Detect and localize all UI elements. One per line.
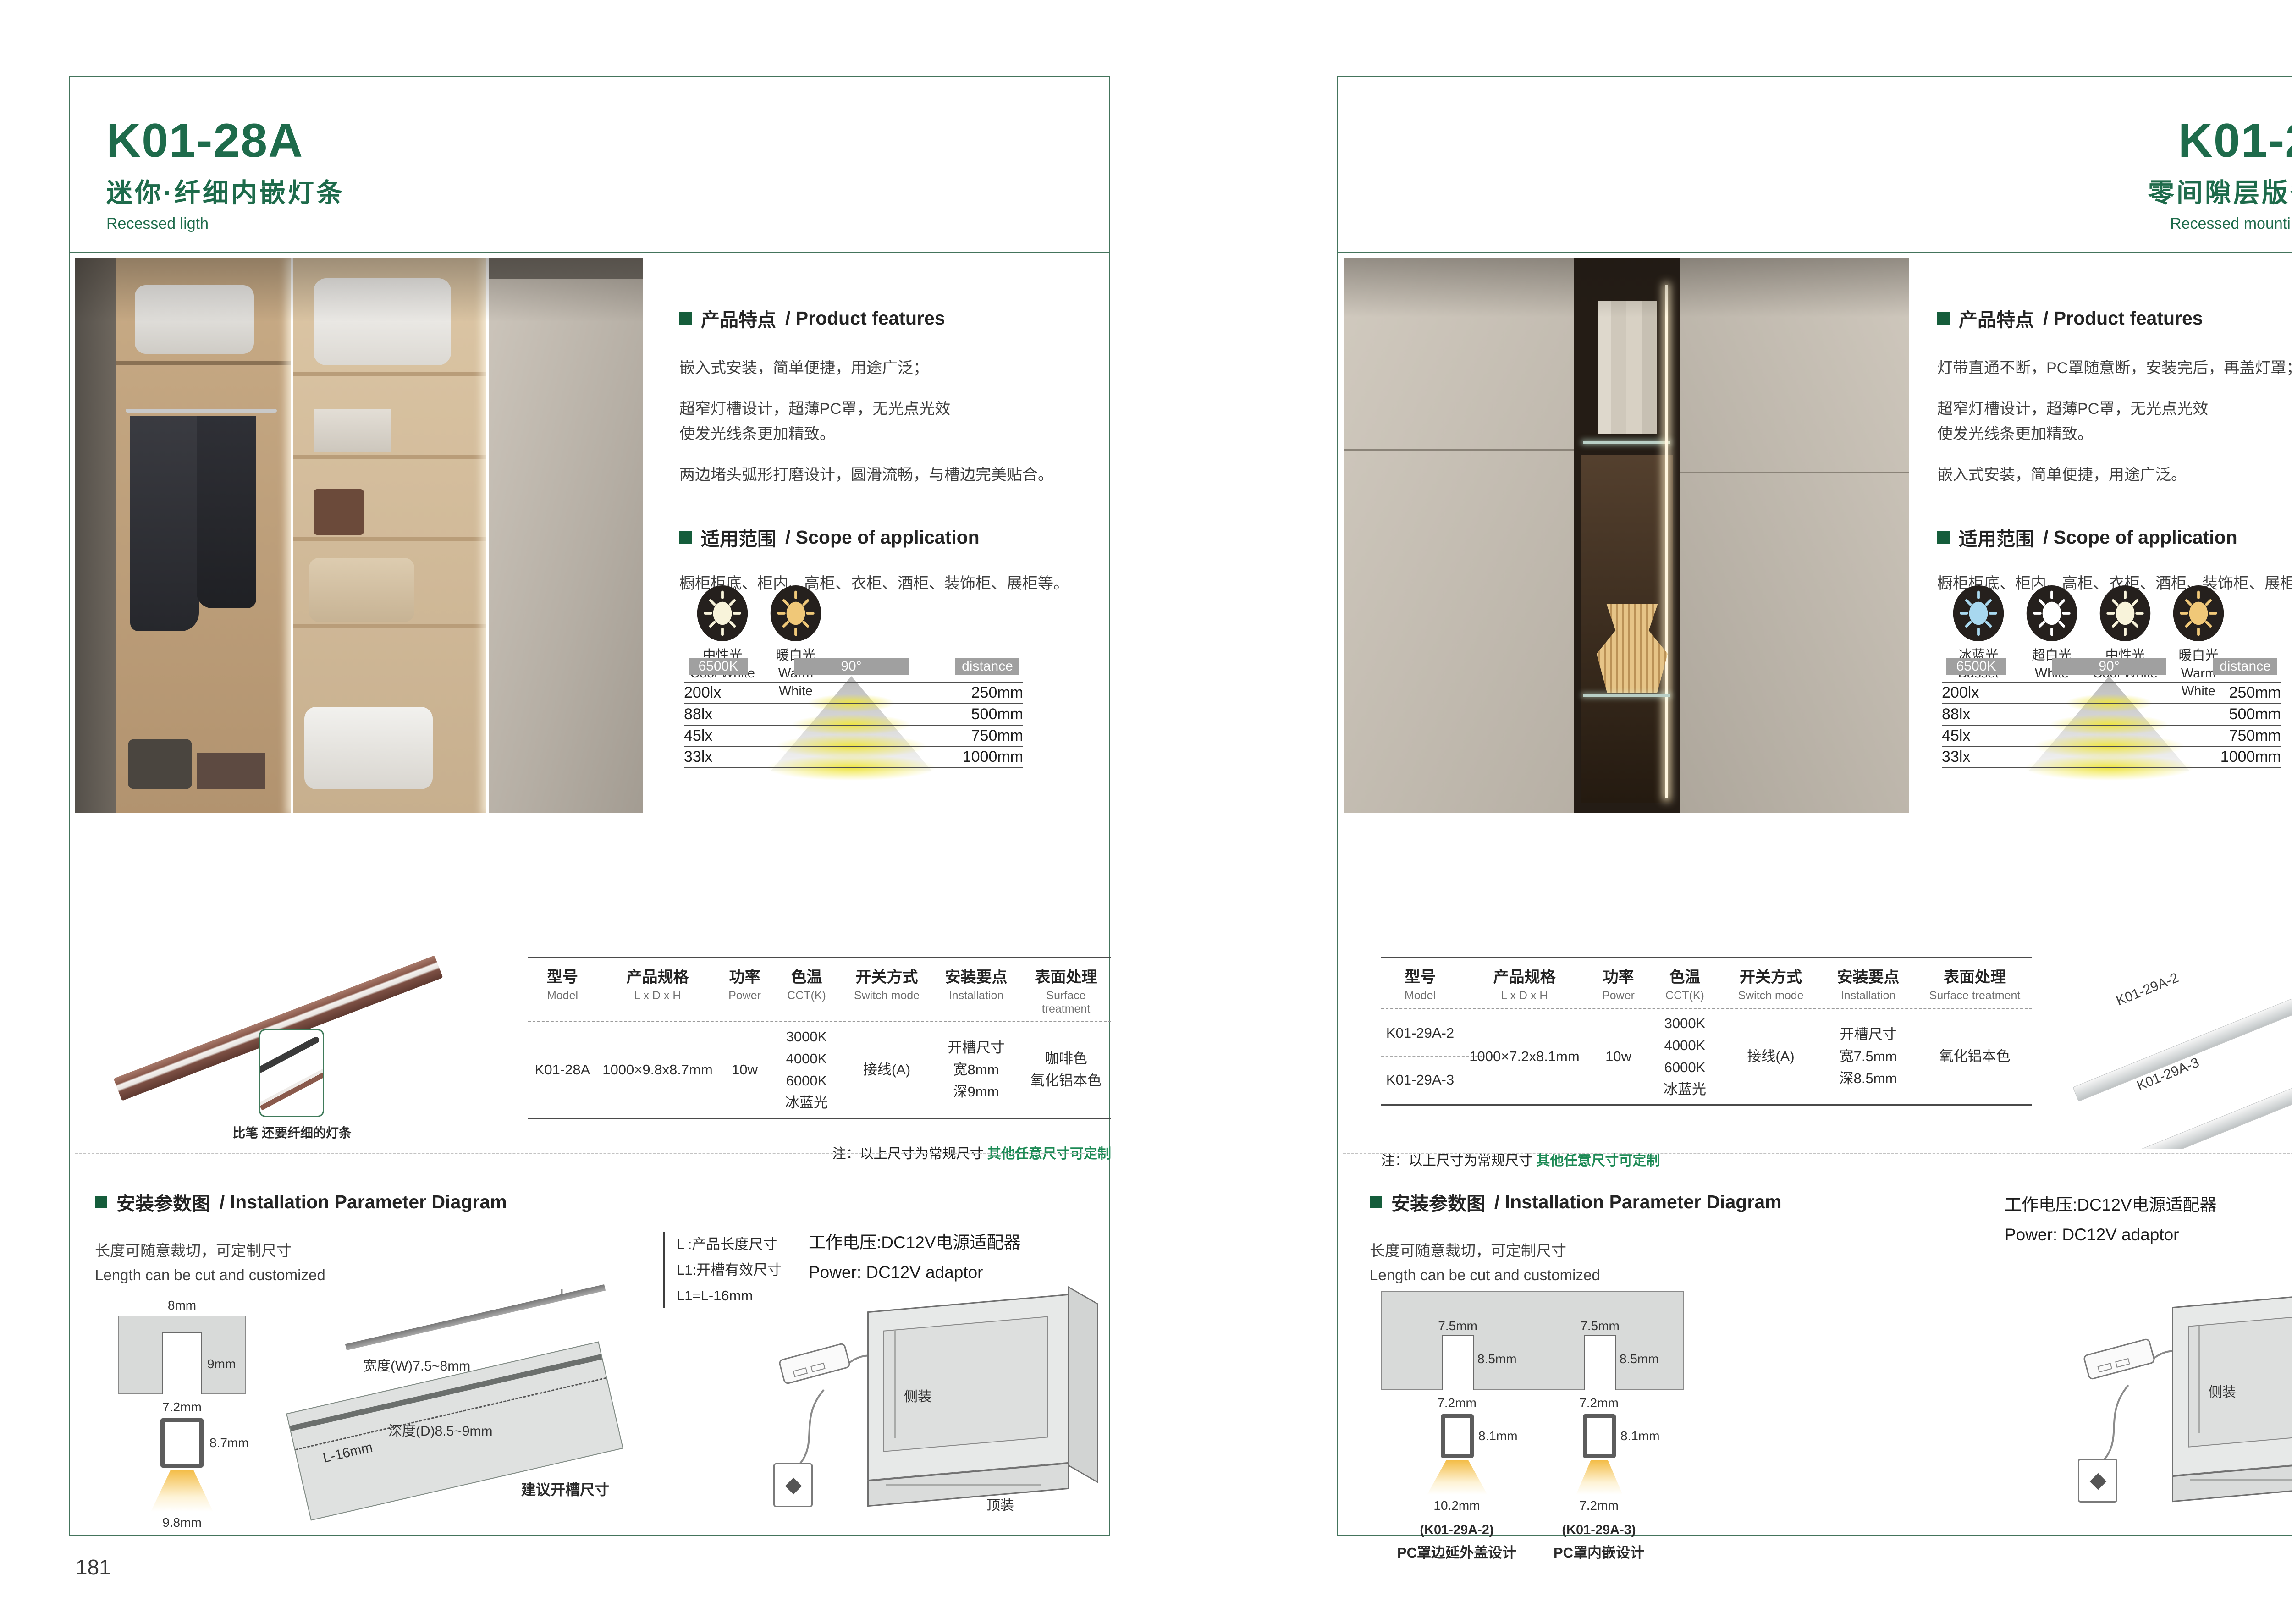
length-note: 长度可随意裁切，可定制尺寸 Length can be cut and cust… [95, 1239, 325, 1288]
model-title: K01-28A [106, 117, 345, 165]
features-section: 产品特点 / Product features 嵌入式安装，简单便捷，用途广泛；… [679, 304, 1094, 596]
features-title: 产品特点 / Product features [679, 304, 1094, 332]
slot-caption-1: PC罩边延外盖设计 [1390, 1541, 1523, 1562]
scope-title-cn: 适用范围 [701, 523, 776, 551]
cabinet-opening [883, 1316, 1048, 1452]
dim-depth-1: 8.5mm [1477, 1352, 1517, 1366]
table-body-row: K01-28A 1000×9.8x8.7mm 10w 3000K 4000K 6… [528, 1022, 1111, 1118]
cabinet-photo [1344, 258, 1909, 813]
mm-value: 500mm [971, 705, 1023, 723]
wall-socket [2078, 1459, 2117, 1503]
photo-sliding-door [489, 258, 643, 813]
strip-shape [259, 1068, 324, 1110]
td-power: 10w [718, 1059, 771, 1081]
photo-shelf-3 [293, 537, 487, 541]
th-switch: 开关方式Switch mode [842, 964, 931, 1016]
feature-p3: 嵌入式安装，简单便捷，用途广泛。 [1937, 462, 2292, 488]
td-cct: 3000K 4000K 6000K 冰蓝光 [771, 1026, 842, 1114]
td-install: 开槽尺寸 宽7.5mm 深8.5mm [1819, 1024, 1917, 1090]
feature-p2b: 使发光线条更加精致。 [679, 422, 1094, 447]
mm-value: 250mm [2229, 684, 2281, 702]
features-section: 产品特点 / Product features 灯带直通不断，PC罩随意断，安装… [1937, 304, 2292, 596]
photo-shelf-2 [293, 455, 487, 459]
photo-panel-seam [1680, 472, 1909, 473]
page-right: K01-29A 零间隙层版条形灯 Recessed mounting LED l… [1337, 76, 2292, 1536]
bullet-square-icon [1937, 531, 1950, 544]
dim-depth: 9mm [207, 1357, 236, 1371]
sun-icon [769, 584, 823, 642]
twin-cross-section: 7.5mm 7.5mm 8.5mm 8.5mm 7.2mm 7.2mm 8.1m… [1381, 1291, 1702, 1539]
photo-left-edge [75, 258, 116, 813]
page-left: K01-28A 迷你·纤细内嵌灯条 Recessed ligth [69, 76, 1110, 1536]
beam-row: 200lx250mm [1942, 682, 2281, 703]
adaptor-vent [810, 1363, 826, 1372]
scope-title-en: / Scope of application [2043, 527, 2237, 548]
dim-beam-2: 7.2mm [1562, 1498, 1636, 1513]
lx-value: 45lx [1942, 727, 1970, 745]
subtitle-cn: 迷你·纤细内嵌灯条 [106, 172, 345, 209]
beam-row: 88lx500mm [1942, 703, 2281, 725]
photo-bag-dark [128, 739, 192, 789]
angle-bar: 90° [2052, 658, 2166, 675]
beam-chart-right: 6500K 90° distance 200lx250mm 88lx500mm … [1942, 658, 2281, 771]
title-rule [1337, 252, 2292, 253]
beam-row: 45lx750mm [1942, 725, 2281, 746]
panel-block [118, 1316, 246, 1394]
led-strip-side [2198, 1326, 2200, 1433]
features-title-cn: 产品特点 [701, 304, 776, 332]
slot-3d-diagram: L 宽度(W)7.5~8mm L-16mm 深度(D)8.5~9mm 建议开槽尺… [267, 1282, 661, 1511]
th-power: 功率Power [718, 964, 771, 1016]
profile-outline-2 [1583, 1414, 1616, 1458]
distance-bar: distance [955, 658, 1019, 675]
power-note: 工作电压:DC12V电源适配器 Power: DC12V adaptor [2005, 1190, 2217, 1250]
cross-section-diagram: 8mm 9mm 7.2mm 8.7mm 9.8mm [118, 1298, 255, 1536]
th-power: 功率Power [1590, 964, 1647, 1002]
th-cct: 色温CCT(K) [1647, 964, 1723, 1002]
led-strip-top [886, 1484, 1041, 1486]
table-body-row: K01-29A-2 K01-29A-3 1000×7.2x8.1mm 10w 3… [1381, 1009, 2032, 1104]
features-title-cn: 产品特点 [1959, 304, 2034, 332]
adaptor-vent [2097, 1363, 2112, 1372]
td-surface: 氧化铝本色 [1917, 1046, 2032, 1068]
profile-piece-3d [345, 1284, 606, 1350]
led-strip-1 [2072, 947, 2292, 1102]
dim-slot-width: 宽度(W)7.5~8mm [363, 1354, 470, 1375]
photo-bedding [304, 707, 433, 789]
subtitle-cn: 零间隙层版条形灯 [2148, 172, 2292, 209]
power-cn: 工作电压:DC12V电源适配器 [809, 1228, 1021, 1258]
product-caption: 比笔 还要纤细的灯条 [226, 1123, 358, 1141]
th-surface: 表面处理Surface treatment [1021, 964, 1111, 1016]
td-spec: 1000×9.8x8.7mm [597, 1059, 718, 1081]
dim-slot-depth: 深度(D)8.5~9mm [388, 1420, 493, 1440]
wall-socket [773, 1463, 813, 1507]
adaptor-vent [2115, 1358, 2130, 1368]
length-note-cn: 长度可随意裁切，可定制尺寸 [95, 1239, 325, 1263]
photo-garment-1 [130, 416, 199, 631]
feature-p1: 灯带直通不断，PC罩随意断，安装完后，再盖灯罩； [1937, 356, 2292, 381]
dim-beam-width: 9.8mm [141, 1515, 223, 1530]
feature-p3: 两边堵头弧形打磨设计，圆滑流畅，与槽边完美贴合。 [679, 462, 1094, 488]
bullet-square-icon [1937, 312, 1950, 325]
mm-value: 1000mm [2220, 748, 2281, 766]
socket-hole [785, 1478, 802, 1495]
photo-glass-shelf-2 [1583, 694, 1670, 697]
dim-beam-1: 10.2mm [1420, 1498, 1493, 1513]
cabinet-side [1068, 1286, 1098, 1483]
scope-title-en: / Scope of application [785, 527, 980, 548]
model-title: K01-29A [2148, 117, 2292, 165]
td-model: K01-28A [528, 1059, 597, 1081]
th-model: 型号Model [528, 964, 597, 1016]
power-en: Power: DC12V adaptor [2005, 1220, 2217, 1250]
bullet-square-icon [679, 531, 692, 544]
dim-inner-2: 7.2mm [1562, 1396, 1636, 1410]
scope-title: 适用范围 / Scope of application [679, 523, 1094, 551]
install-title-cn: 安装参数图 [116, 1188, 210, 1216]
spec-table-right: 型号Model 产品规格L x D x H 功率Power 色温CCT(K) 开… [1381, 957, 2032, 1106]
slot-notch-1 [1442, 1335, 1474, 1390]
label-side-mount: 侧装 [904, 1385, 931, 1405]
beam-row: 88lx500mm [684, 703, 1023, 725]
page-number-left: 181 [76, 1555, 111, 1580]
td-model: K01-29A-2 K01-29A-3 [1381, 1022, 1459, 1091]
photo-satchel [314, 489, 364, 535]
photo-garment-2 [197, 416, 256, 608]
spec-table-left: 型号Model 产品规格L x D x H 功率Power 色温CCT(K) 开… [528, 957, 1111, 1119]
adaptor-vent [793, 1367, 808, 1377]
photo-glass-shelf [1583, 441, 1670, 444]
light-beam [151, 1470, 213, 1512]
feature-p2b: 使发光线条更加精致。 [1937, 422, 2292, 447]
pen-shape [259, 1036, 320, 1074]
install-title-en: / Installation Parameter Diagram [1494, 1191, 1782, 1213]
table-header-row: 型号Model 产品规格L x D x H 功率Power 色温CCT(K) 开… [528, 958, 1111, 1022]
photo-top-shadow [1344, 258, 1909, 317]
th-install: 安装要点Installation [1819, 964, 1917, 1002]
light-beam-2 [1576, 1460, 1623, 1495]
photo-folded-linens [314, 409, 391, 452]
td-spec: 1000×7.2x8.1mm [1459, 1046, 1590, 1068]
features-title-en: / Product features [2043, 308, 2203, 329]
dim-top-width-1: 7.5mm [1421, 1319, 1494, 1333]
th-cct: 色温CCT(K) [771, 964, 842, 1016]
dim-top-width-2: 7.5mm [1563, 1319, 1636, 1333]
photo-hanging-rod [126, 409, 277, 413]
install-title-en: / Installation Parameter Diagram [220, 1191, 507, 1213]
table-note: 注：以上尺寸为常规尺寸 其他任意尺寸可定制 [528, 1142, 1111, 1162]
features-title: 产品特点 / Product features [1937, 304, 2292, 332]
sun-icon [695, 584, 749, 642]
table-header-row: 型号Model 产品规格L x D x H 功率Power 色温CCT(K) 开… [1381, 958, 2032, 1009]
beam-rows: 200lx250mm 88lx500mm 45lx750mm 33lx1000m… [1942, 682, 2281, 768]
beam-chart-left: 6500K 90° distance 200lx250mm 88lx500mm … [684, 658, 1023, 771]
length-note-en: Length can be cut and customized [1370, 1263, 1600, 1287]
title-rule [69, 252, 1110, 253]
pen-comparison-inset [259, 1029, 324, 1117]
td-install: 开槽尺寸 宽8mm 深9mm [931, 1037, 1021, 1103]
install-title: 安装参数图 / Installation Parameter Diagram [1370, 1188, 1782, 1216]
light-beam-1 [1427, 1460, 1488, 1495]
td-switch: 接线(A) [1723, 1046, 1819, 1068]
lx-value: 33lx [1942, 748, 1970, 766]
feature-p2a: 超窄灯槽设计，超薄PC罩，无光点光效 [679, 396, 1094, 422]
page-left-title-block: K01-28A 迷你·纤细内嵌灯条 Recessed ligth [106, 117, 345, 233]
scope-title-cn: 适用范围 [1959, 523, 2034, 551]
photo-duffel-bag [309, 558, 414, 622]
feature-p1: 嵌入式安装，简单便捷，用途广泛； [679, 356, 1094, 381]
beam-row: 45lx750mm [684, 725, 1023, 746]
bullet-square-icon [1370, 1196, 1382, 1208]
lx-value: 200lx [684, 684, 721, 702]
slot-notch-2 [1584, 1335, 1616, 1390]
th-surface: 表面处理Surface treatment [1917, 964, 2032, 1002]
page-right-title-block: K01-29A 零间隙层版条形灯 Recessed mounting LED l… [2148, 117, 2292, 233]
slot-caption: 建议开槽尺寸 [521, 1478, 609, 1499]
photo-books [1598, 301, 1657, 434]
wardrobe-photo [75, 258, 643, 813]
beam-rows: 200lx250mm 88lx500mm 45lx750mm 33lx1000m… [684, 682, 1023, 768]
dim-l-minus: L-16mm [321, 1440, 374, 1466]
dim-height-1: 8.1mm [1478, 1429, 1518, 1443]
lx-value: 200lx [1942, 684, 1979, 702]
install-title: 安装参数图 / Installation Parameter Diagram [95, 1188, 507, 1216]
power-cn: 工作电压:DC12V电源适配器 [2005, 1190, 2217, 1220]
subtitle-en: Recessed mounting LED light [2148, 215, 2292, 233]
dim-inner-1: 7.2mm [1420, 1396, 1493, 1410]
beam-row: 33lx1000mm [1942, 746, 2281, 768]
scope-title: 适用范围 / Scope of application [1937, 523, 2292, 551]
slot-notch [162, 1332, 202, 1394]
mm-value: 750mm [2229, 727, 2281, 745]
feature-p2a: 超窄灯槽设计，超薄PC罩，无光点光效 [1937, 396, 2292, 422]
cabinet-opening [2188, 1311, 2292, 1447]
bullet-square-icon [679, 312, 692, 325]
dim-height: 8.7mm [209, 1436, 249, 1450]
cabinet-scene-right: 侧装 顶装 [2034, 1264, 2292, 1520]
dim-height-2: 8.1mm [1620, 1429, 1660, 1443]
bullet-square-icon [95, 1196, 107, 1208]
mm-value: 1000mm [963, 748, 1023, 766]
angle-bar: 90° [794, 658, 909, 675]
features-title-en: / Product features [785, 308, 945, 329]
dashed-separator [1343, 1153, 2292, 1154]
th-install: 安装要点Installation [931, 964, 1021, 1016]
td-power: 10w [1590, 1046, 1647, 1068]
product-strips-image: K01-29A-2 K01-29A-3 [2071, 929, 2292, 1149]
lx-value: 88lx [1942, 705, 1970, 723]
slot-caption-2: PC罩内嵌设计 [1535, 1541, 1663, 1562]
beam-row: 200lx250mm [684, 682, 1023, 703]
note-highlight: 其他任意尺寸可定制 [1536, 1153, 1660, 1168]
distance-bar: distance [2213, 658, 2277, 675]
dim-top-width: 8mm [145, 1298, 219, 1313]
dim-inner-width: 7.2mm [145, 1400, 219, 1415]
panel-block: 7.5mm 7.5mm 8.5mm 8.5mm [1381, 1291, 1684, 1390]
profile-outline [160, 1418, 204, 1468]
subtitle-en: Recessed ligth [106, 215, 345, 233]
photo-box [197, 753, 265, 789]
cct-bar: 6500K [689, 658, 748, 675]
photo-panel-left [1344, 258, 1574, 813]
socket-hole [2090, 1473, 2107, 1490]
table-note: 注：以上尺寸为常规尺寸 其他任意尺寸可定制 [1381, 1149, 1660, 1169]
cabinet-scene-left: 侧装 顶装 [730, 1268, 1110, 1525]
td-surface: 咖啡色 氧化铝本色 [1021, 1048, 1111, 1092]
led-strip-top [2190, 1479, 2292, 1481]
photo-shelf-1 [293, 372, 487, 376]
lx-value: 33lx [684, 748, 712, 766]
th-spec: 产品规格L x D x H [597, 964, 718, 1016]
label-side-mount: 侧装 [2209, 1381, 2236, 1401]
th-model: 型号Model [1381, 964, 1459, 1002]
photo-panel-seam [1344, 449, 1574, 451]
lx-value: 88lx [684, 705, 712, 723]
slot-model-1: (K01-29A-2) [1399, 1523, 1514, 1538]
label-top-mount: 顶装 [986, 1494, 1014, 1514]
photo-panel-right [1680, 258, 1909, 813]
cct-bar: 6500K [1946, 658, 2006, 675]
photo-shelf-line [116, 361, 292, 365]
strip-label-1: K01-29A-2 [2114, 970, 2181, 1009]
length-note-cn: 长度可随意裁切，可定制尺寸 [1370, 1239, 1600, 1263]
th-switch: 开关方式Switch mode [1723, 964, 1819, 1002]
th-spec: 产品规格L x D x H [1459, 964, 1590, 1002]
dim-depth-2: 8.5mm [1620, 1352, 1659, 1366]
led-strip-side [894, 1330, 896, 1438]
dashed-separator [75, 1153, 1106, 1154]
lx-value: 45lx [684, 727, 712, 745]
slot-model-2: (K01-29A-3) [1542, 1523, 1656, 1538]
catalog-spread: K01-28A 迷你·纤细内嵌灯条 Recessed ligth [0, 0, 2292, 1624]
mm-value: 250mm [971, 684, 1023, 702]
legend-line: L :产品长度尺寸 [677, 1232, 782, 1257]
photo-top-shadow [75, 258, 643, 322]
profile-outline-1 [1441, 1414, 1474, 1458]
beam-row: 33lx1000mm [684, 746, 1023, 768]
length-note: 长度可随意裁切，可定制尺寸 Length can be cut and cust… [1370, 1239, 1600, 1288]
mm-value: 750mm [971, 727, 1023, 745]
td-switch: 接线(A) [842, 1059, 931, 1081]
mm-value: 500mm [2229, 705, 2281, 723]
photo-led-line [1665, 285, 1668, 798]
photo-shelf-4 [293, 624, 487, 628]
note-label: 注：以上尺寸为常规尺寸 [1381, 1153, 1536, 1168]
td-cct: 3000K 4000K 6000K 冰蓝光 [1647, 1013, 1723, 1101]
install-title-cn: 安装参数图 [1391, 1188, 1485, 1216]
